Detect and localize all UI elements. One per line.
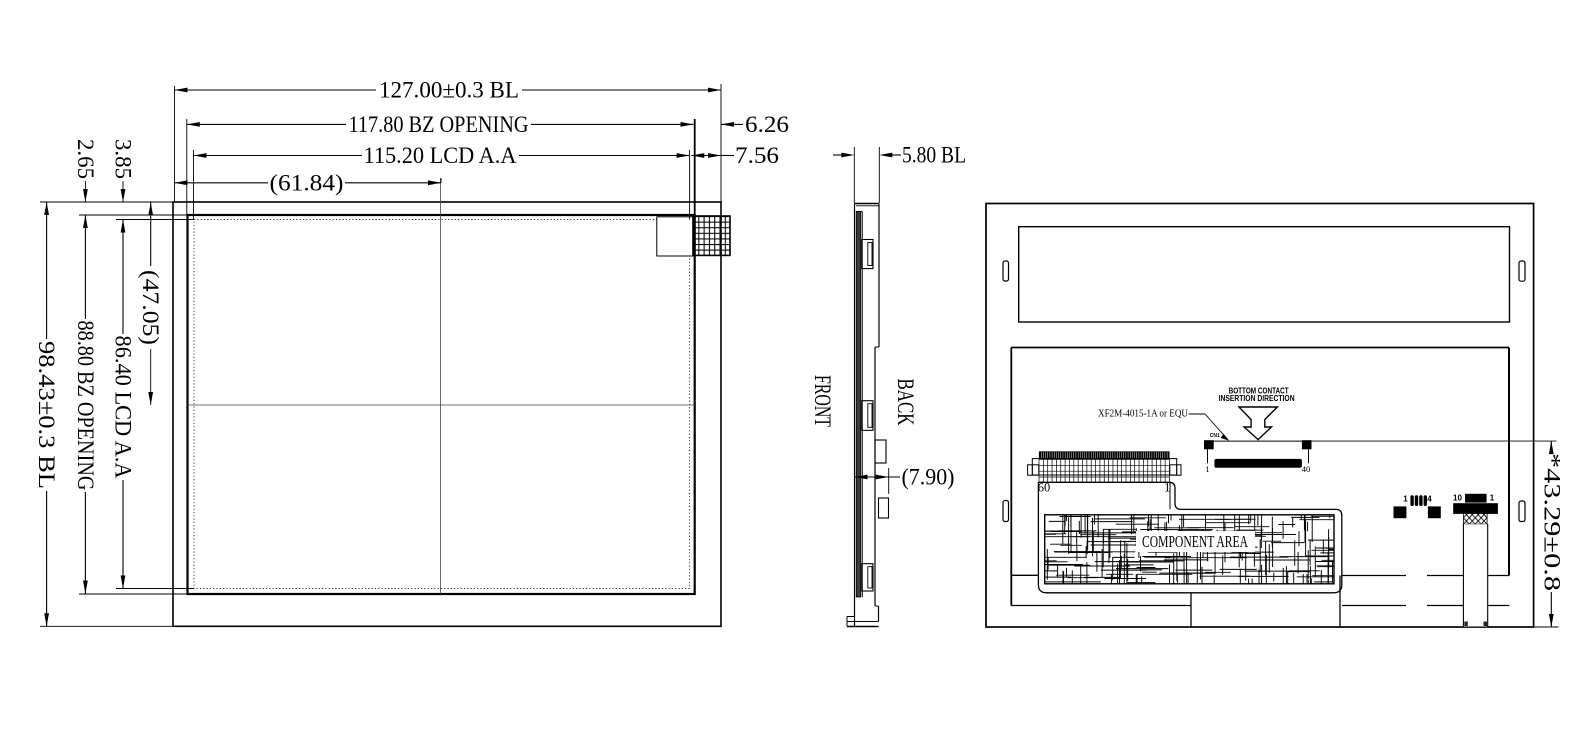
svg-text:10: 10	[1453, 493, 1462, 502]
svg-text:1: 1	[1403, 495, 1408, 504]
svg-text:(7.90): (7.90)	[902, 465, 955, 490]
svg-text:4: 4	[1427, 495, 1432, 504]
svg-text:98.43±0.3 BL: 98.43±0.3 BL	[34, 341, 59, 489]
svg-text:86.40 LCD A.A: 86.40 LCD A.A	[111, 336, 136, 479]
svg-text:115.20 LCD A.A: 115.20 LCD A.A	[364, 143, 517, 168]
svg-text:(61.84): (61.84)	[270, 170, 344, 195]
svg-text:INSERTION DIRECTION: INSERTION DIRECTION	[1219, 394, 1295, 403]
svg-text:BACK: BACK	[893, 379, 918, 426]
svg-text:40: 40	[1302, 464, 1311, 474]
svg-text:3.85: 3.85	[111, 139, 136, 179]
svg-text:CN1: CN1	[1210, 433, 1220, 439]
svg-text:5.80 BL: 5.80 BL	[902, 143, 966, 168]
svg-text:FRONT: FRONT	[810, 375, 835, 427]
svg-text:7.56: 7.56	[735, 143, 779, 168]
svg-text:1: 1	[1490, 494, 1495, 503]
svg-text:XF2M-4015-1A or EQU: XF2M-4015-1A or EQU	[1098, 409, 1188, 420]
svg-text:88.80 BZ OPENING: 88.80 BZ OPENING	[73, 321, 98, 491]
svg-text:60: 60	[1038, 480, 1051, 494]
svg-text:1: 1	[1164, 480, 1170, 494]
svg-text:*43.29±0.8: *43.29±0.8	[1539, 453, 1564, 591]
svg-text:1: 1	[1205, 464, 1209, 474]
svg-text:2.65: 2.65	[73, 139, 98, 179]
svg-text:6.26: 6.26	[745, 112, 789, 137]
svg-text:117.80 BZ OPENING: 117.80 BZ OPENING	[349, 112, 529, 137]
svg-text:COMPONENT AREA: COMPONENT AREA	[1142, 532, 1248, 551]
svg-text:127.00±0.3 BL: 127.00±0.3 BL	[379, 78, 519, 103]
svg-text:(47.05): (47.05)	[138, 270, 163, 345]
